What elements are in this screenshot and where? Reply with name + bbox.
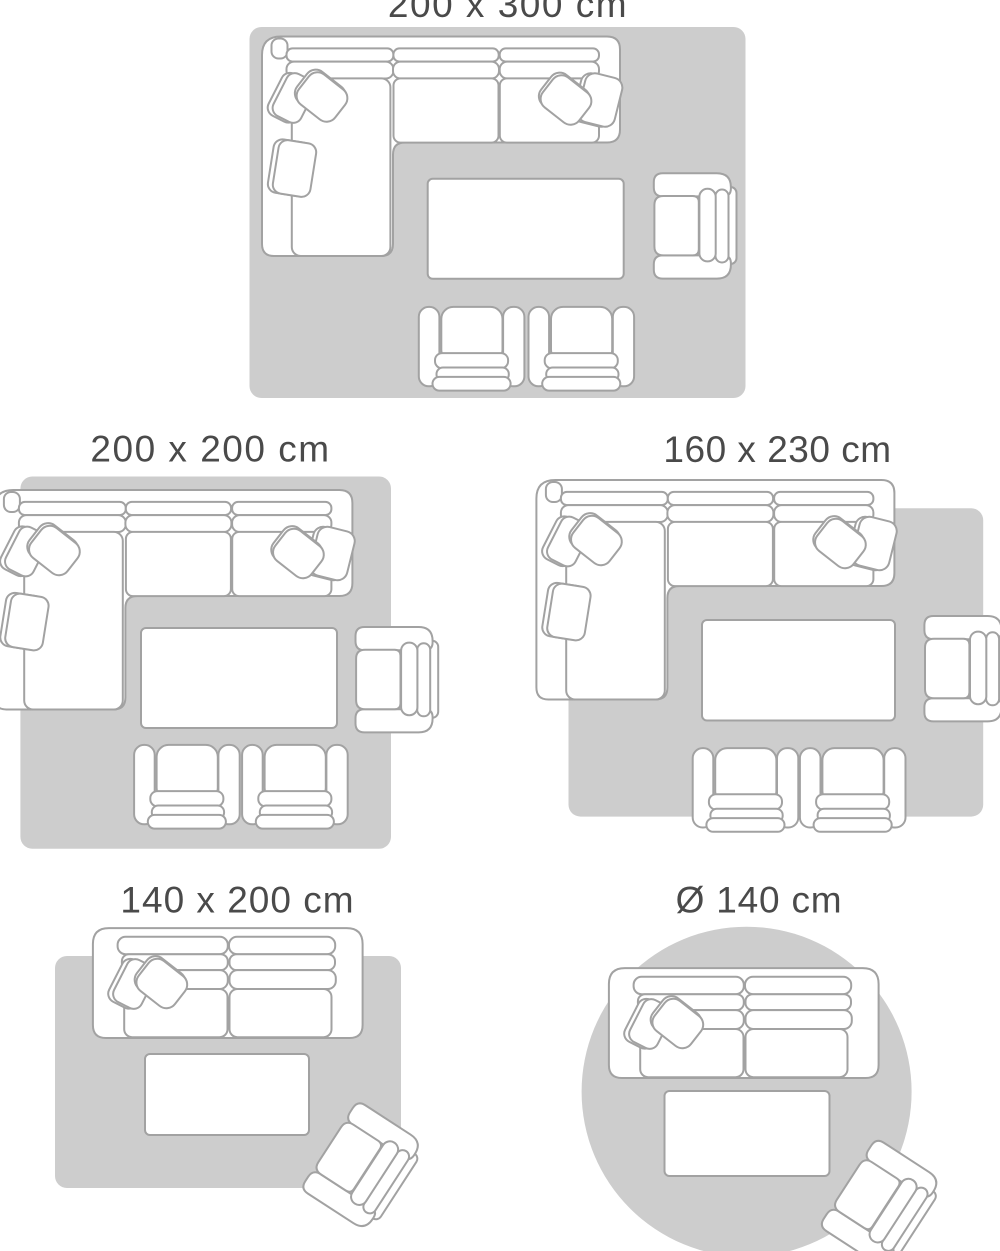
svg-text:140 x 200 cm: 140 x 200 cm (120, 880, 354, 921)
svg-text:200 x 200 cm: 200 x 200 cm (90, 429, 330, 470)
svg-text:160 x 230 cm: 160 x 230 cm (663, 429, 891, 470)
svg-text:200 x 300 cm: 200 x 300 cm (388, 0, 628, 25)
svg-text:Ø 140 cm: Ø 140 cm (676, 880, 843, 921)
